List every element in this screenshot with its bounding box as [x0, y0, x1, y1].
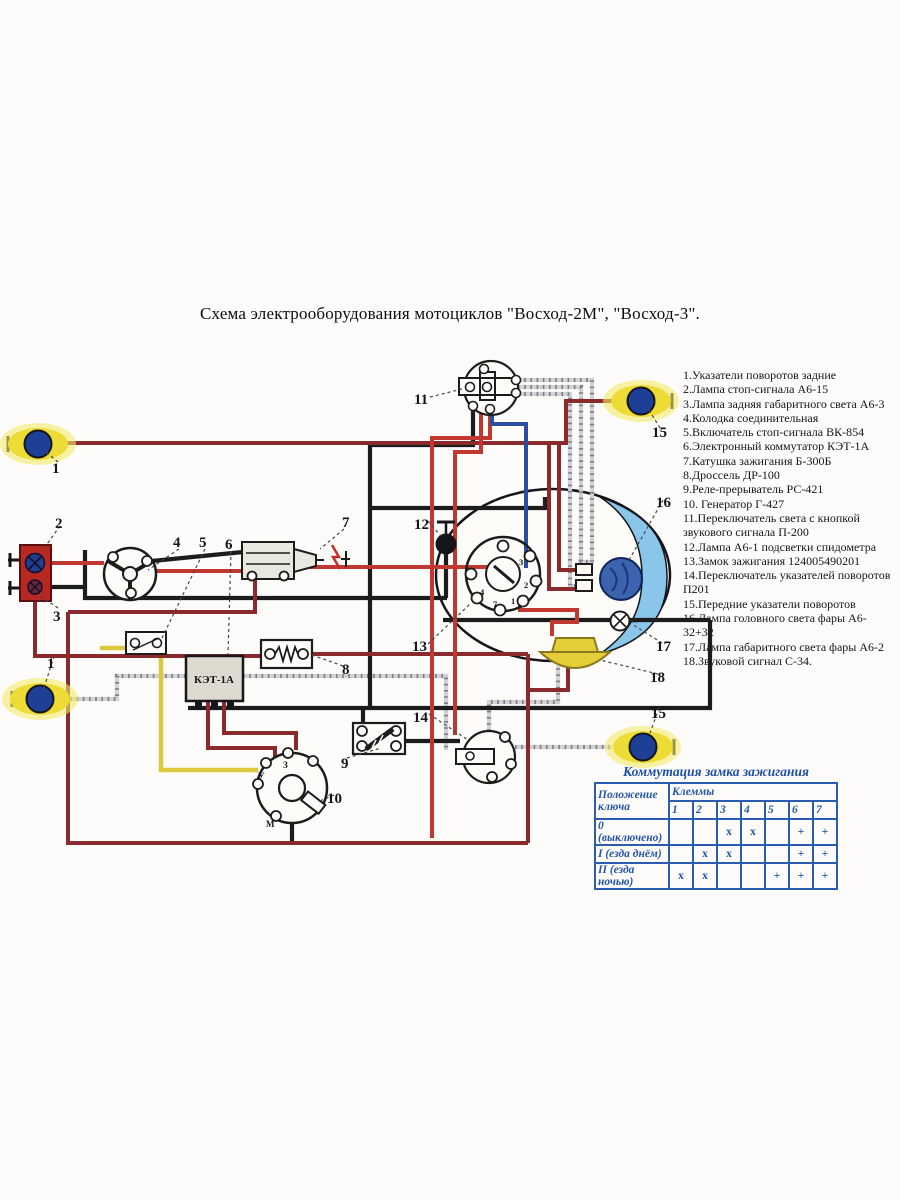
switch-mark-cell: x — [717, 845, 741, 863]
diagram-label: 17 — [656, 639, 672, 655]
diagram-label: З — [283, 760, 288, 770]
switch-mark-cell — [765, 819, 789, 845]
terminal-number: 2 — [693, 801, 717, 819]
scanned-wiring-diagram-page: Схема электрооборудования мотоциклов "Во… — [0, 0, 900, 1200]
light-horn-switch — [459, 361, 521, 415]
relay-rs421 — [353, 723, 405, 754]
wiring-diagram: 112345678910111213141515161718КЭТ-1АУЗМ3… — [0, 0, 900, 1200]
diagram-label: 1 — [47, 656, 55, 672]
diagram-label: 8 — [342, 662, 350, 678]
switch-mark-cell — [741, 863, 765, 889]
diagram-label: 5 — [199, 535, 207, 551]
ignition-coil — [242, 542, 350, 581]
generator — [253, 748, 327, 823]
ignition-switch-table: Коммутация замка зажигания Положение клю… — [594, 764, 838, 890]
diagram-label: 4 — [173, 535, 181, 551]
turn-signal-front-right-bottom — [605, 726, 681, 768]
key-position-label: II (езда ночью) — [595, 863, 669, 889]
turn-signal-rear-left — [0, 423, 76, 465]
diagram-label: 2 — [55, 516, 63, 532]
diagram-label: 6 — [225, 537, 233, 553]
diagram-label: 3 — [53, 609, 61, 625]
table-title: Коммутация замка зажигания — [594, 764, 838, 780]
diagram-label: 3 — [519, 557, 523, 567]
switch-mark-cell — [717, 863, 741, 889]
switch-mark-cell: + — [765, 863, 789, 889]
table-body: 0 (выключено)xx++I (езда днём)xx++II (ез… — [595, 819, 837, 889]
diagram-label: 18 — [650, 670, 665, 686]
diagram-label: 1 — [52, 461, 60, 477]
diagram-label: КЭТ-1А — [194, 674, 234, 686]
turn-signal-rear-left-2 — [2, 678, 78, 720]
diagram-label: 11 — [414, 392, 428, 408]
switch-mark-cell — [693, 819, 717, 845]
diagram-label: 13 — [412, 639, 427, 655]
table-row: I (езда днём)xx++ — [595, 845, 837, 863]
tail-light-assembly — [8, 545, 51, 601]
diagram-label: 15 — [651, 706, 666, 722]
diagram-label: 10 — [327, 791, 342, 807]
switch-mark-cell: x — [693, 863, 717, 889]
switch-mark-cell: x — [717, 819, 741, 845]
switch-mark-cell: + — [789, 863, 813, 889]
terminal-number: 3 — [717, 801, 741, 819]
switch-mark-cell: + — [813, 819, 837, 845]
turn-signal-front-right-top — [603, 380, 679, 422]
diagram-label: 15 — [652, 425, 667, 441]
terminal-number: 1 — [669, 801, 693, 819]
diagram-label: 16 — [656, 495, 672, 511]
diagram-label: 12 — [414, 517, 429, 533]
table-row: 0 (выключено)xx++ — [595, 819, 837, 845]
terminal-number: 5 — [765, 801, 789, 819]
switch-mark-cell: x — [693, 845, 717, 863]
switch-mark-cell — [669, 819, 693, 845]
switch-mark-cell — [669, 845, 693, 863]
switch-mark-cell: + — [789, 819, 813, 845]
diagram-label: 1 — [511, 596, 515, 606]
key-position-label: 0 (выключено) — [595, 819, 669, 845]
switch-mark-cell — [741, 845, 765, 863]
diagram-label: 9 — [341, 756, 349, 772]
choke-dr100 — [261, 640, 312, 668]
diagram-label: 2 — [524, 580, 528, 590]
switch-mark-cell: + — [813, 845, 837, 863]
commutation-table: Положение ключа Клеммы 1234567 0 (выключ… — [594, 782, 838, 890]
key-position-header: Положение ключа — [595, 783, 669, 819]
terminal-number: 4 — [741, 801, 765, 819]
switch-mark-cell: x — [669, 863, 693, 889]
connector-block — [104, 548, 156, 600]
switch-mark-cell: x — [741, 819, 765, 845]
turn-indicator-switch — [456, 731, 516, 783]
diagram-label: 7 — [342, 515, 350, 531]
switch-mark-cell — [765, 845, 789, 863]
switch-mark-cell: + — [813, 863, 837, 889]
diagram-label: М — [266, 819, 275, 829]
diagram-label: У — [258, 771, 265, 781]
table-row: II (езда ночью)xx+++ — [595, 863, 837, 889]
diagram-label: 14 — [413, 710, 429, 726]
switch-mark-cell: + — [789, 845, 813, 863]
stop-signal-switch — [126, 632, 166, 654]
terminal-number: 7 — [813, 801, 837, 819]
terminals-header: Клеммы — [669, 783, 837, 801]
key-position-label: I (езда днём) — [595, 845, 669, 863]
terminal-number: 6 — [789, 801, 813, 819]
